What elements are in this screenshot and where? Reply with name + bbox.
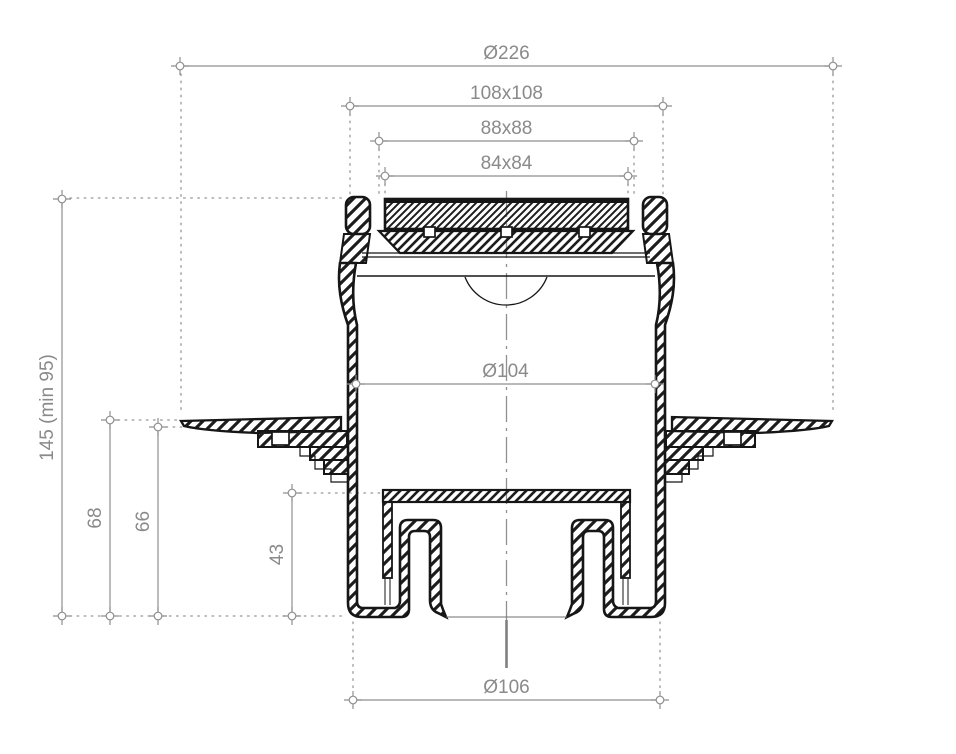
dimension-label: 88x88 [481, 118, 533, 139]
insert-skirt-right [621, 502, 630, 578]
dimension-label: 84x84 [481, 153, 533, 174]
endpoint-circle [58, 195, 66, 203]
endpoint-circle [58, 612, 66, 620]
endpoint-circle [381, 172, 389, 180]
endpoint-circle [630, 137, 638, 145]
endpoint-circle [106, 416, 114, 424]
dimension-label: 68 [85, 507, 106, 528]
dimension-label: Ø106 [483, 677, 529, 698]
clamp-step [665, 447, 703, 460]
endpoint-circle [651, 380, 659, 388]
clamp-step [310, 447, 348, 460]
endpoint-circle [829, 62, 837, 70]
frame-wall-right [643, 234, 673, 263]
frame-rim-right [643, 197, 667, 234]
seat-notch [501, 227, 512, 237]
technical-drawing-page: Ø226108x10888x8884x84Ø104Ø106145 (min 95… [0, 0, 956, 754]
clamp-notch-right [724, 432, 741, 445]
dimension-label: 108x108 [470, 83, 543, 104]
endpoint-circle [349, 696, 357, 704]
endpoint-circle [375, 137, 383, 145]
insert-plate [383, 490, 630, 502]
endpoint-circle [288, 489, 296, 497]
grate [385, 199, 628, 229]
frame-rim-left [346, 197, 370, 234]
endpoint-circle [624, 172, 632, 180]
endpoint-circle [154, 423, 162, 431]
frame-wall-left [340, 234, 370, 263]
dimension-label: 43 [267, 544, 288, 565]
endpoint-circle [154, 612, 162, 620]
seat-notch [424, 227, 435, 237]
dimension-label: 66 [133, 511, 154, 532]
endpoint-circle [288, 612, 296, 620]
endpoint-circle [352, 380, 360, 388]
insert-skirt-left [383, 502, 392, 578]
dimension-label: Ø104 [482, 361, 529, 382]
endpoint-circle [346, 102, 354, 110]
floor-drain-drawing: Ø226108x10888x8884x84Ø104Ø106145 (min 95… [0, 0, 956, 754]
clamp-step [324, 460, 348, 474]
drawing-background [0, 0, 956, 754]
endpoint-circle [176, 62, 184, 70]
dimension-label: 145 (min 95) [37, 354, 58, 461]
dimension-label: Ø226 [483, 43, 529, 64]
endpoint-circle [656, 696, 664, 704]
endpoint-circle [659, 102, 667, 110]
endpoint-circle [106, 612, 114, 620]
clamp-notch-left [272, 432, 289, 445]
clamp-step [665, 460, 689, 474]
seat-notch [579, 227, 590, 237]
